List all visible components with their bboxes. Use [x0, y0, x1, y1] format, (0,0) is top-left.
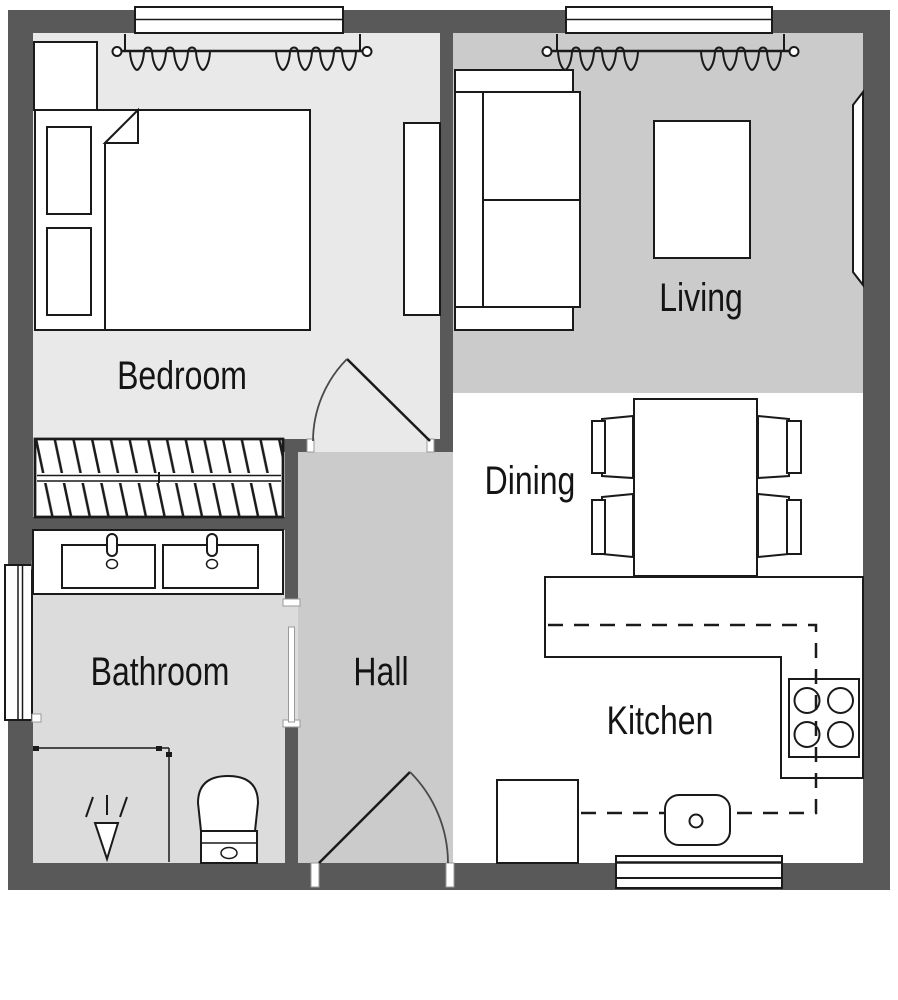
chair-backrest [787, 421, 801, 473]
chair-backrest [592, 500, 605, 554]
bedroom-window [135, 7, 343, 33]
chair-seat [602, 494, 633, 557]
dining-table [634, 399, 757, 576]
wall-bedroom-hall-left [283, 439, 308, 452]
pillow [47, 228, 91, 315]
room-label-bathroom: Bathroom [91, 649, 230, 694]
kitchen-sink [665, 795, 730, 845]
entrance-door-jamb-right [446, 863, 454, 887]
chair-seat [758, 494, 789, 557]
living-window [566, 7, 772, 33]
base-cabinet [497, 780, 578, 863]
bedroom-door-jamb-right [427, 439, 434, 452]
sofa [455, 70, 580, 330]
wall-tv [853, 92, 863, 285]
dresser [34, 42, 97, 110]
chair [758, 416, 801, 478]
curtain-rod-knob [113, 47, 122, 56]
entrance-door-jamb-left [311, 863, 319, 887]
wall-left [8, 10, 33, 890]
room-label-hall: Hall [353, 649, 408, 694]
room-label-living: Living [659, 275, 743, 320]
room-label-kitchen: Kitchen [607, 698, 714, 743]
hob [789, 679, 859, 757]
wall-bedroom-hall-right [433, 439, 453, 452]
chair [592, 416, 633, 478]
radiator [404, 123, 440, 315]
curtain-rod-knob [543, 47, 552, 56]
wardrobe [35, 439, 283, 517]
sofa-cushion [483, 92, 580, 200]
wall-bedroom-bathroom [33, 517, 298, 530]
pillow [47, 127, 91, 214]
room-label-bedroom: Bedroom [117, 353, 247, 398]
toilet [198, 776, 258, 863]
chair [758, 494, 801, 557]
sofa-backrest [455, 92, 483, 307]
sofa-armrest [455, 70, 573, 92]
chair [592, 494, 633, 557]
curtain-rod-knob [363, 47, 372, 56]
wall-right [863, 10, 890, 890]
bathroom-door-leaf [289, 627, 295, 722]
coffee-table [654, 121, 750, 258]
room-label-dining: Dining [485, 458, 576, 503]
sofa-cushion [483, 200, 580, 307]
faucet [107, 534, 117, 556]
wall-bedroom-living [440, 33, 453, 452]
chair-backrest [787, 500, 801, 554]
bathroom-door-jamb-top [283, 599, 300, 606]
toilet-bowl [198, 776, 258, 831]
chair-seat [602, 416, 633, 478]
chair-backrest [592, 421, 605, 473]
sofa-armrest [455, 307, 573, 330]
chair-seat [758, 416, 789, 478]
curtain-rod-knob [790, 47, 799, 56]
floorplan-svg: Bedroom Living [0, 0, 898, 1000]
floorplan: Bedroom Living [0, 0, 898, 1000]
bedroom-door-threshold [314, 439, 427, 452]
faucet [207, 534, 217, 556]
kitchen-window [616, 856, 782, 888]
vanity [33, 530, 283, 594]
